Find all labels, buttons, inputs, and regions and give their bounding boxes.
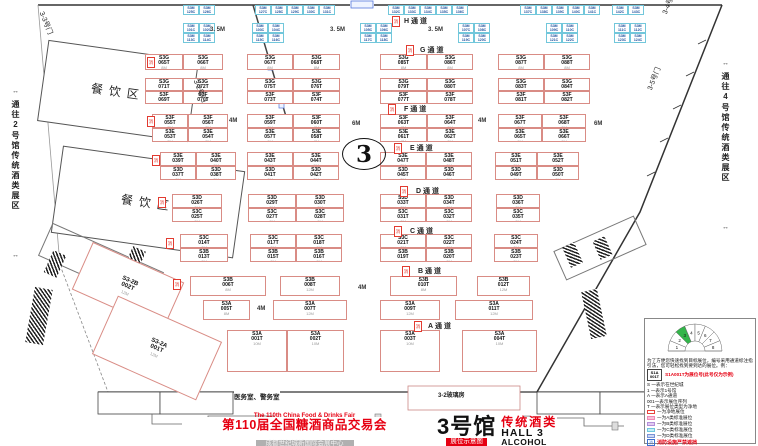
corridor-left-label: 通往2号馆传统酒类展区: [10, 100, 21, 250]
booth-s3c-028t: S3C028T8M: [296, 208, 344, 222]
booth-s3e-043t: S3E043T8M: [247, 152, 293, 166]
standard-booth-s3m-137c: S3M137C: [520, 5, 536, 15]
booth-s3d-045t: S3D045T8M: [380, 166, 426, 180]
booth-s3b-012t: S3B012T12M: [477, 276, 530, 296]
booth-s3f-060t: S3F060T8M: [293, 114, 340, 128]
aisle-label-e: E通道: [410, 143, 435, 153]
aisle-label-g: G通道: [420, 45, 445, 55]
standard-booth-s3m-114c: S3M114C: [199, 33, 215, 43]
booth-dimension: 12M: [281, 288, 339, 292]
direction-arrow-icon: ↔: [12, 88, 19, 95]
booth-s3c-031t: S3C031T8M: [380, 208, 426, 222]
booth-dimension: 8M: [427, 220, 471, 222]
fire-hydrant-tag: 消: [147, 57, 155, 68]
booth-s3a-001t: S3A001T10M: [227, 330, 287, 372]
booth-s3g-083t: S3G083T8M: [498, 78, 544, 91]
booth-s3f-068t: S3F068T8M: [542, 114, 586, 128]
standard-booth-s3m-138c: S3M138C: [536, 5, 552, 15]
booth-dimension: 7M: [153, 140, 187, 142]
booth-s3d-042t: S3D042T8M: [293, 166, 339, 180]
booth-dimension: 8M: [204, 312, 249, 316]
booth-s3g-088t: S3G088T8M: [544, 54, 590, 70]
booth-s3b-020t: S3B020T8M: [426, 248, 472, 262]
booth-dimension: 12M: [381, 312, 439, 316]
standard-booth-s3m-136c: S3M136C: [452, 5, 468, 15]
fire-hydrant-tag: 消: [402, 266, 410, 277]
booth-dimension: 8M: [381, 140, 426, 142]
booth-s3e-053t: S3E053T7M: [152, 128, 188, 142]
booth-s3f-073t: S3F073T8M: [247, 91, 293, 104]
standard-booth-s3m-120c: S3M120C: [474, 33, 490, 43]
booth-s3f-067t: S3F067T8M: [498, 114, 542, 128]
standard-booth-s3m-124c: S3M124C: [630, 33, 646, 43]
booth-s3a-011t: S3A011T12M: [455, 300, 533, 320]
booth-s3b-013t: S3B013T8M: [180, 248, 228, 262]
fire-hydrant-tag: 消: [388, 104, 396, 115]
booth-dimension: 8M: [427, 178, 471, 180]
booth-s3e-048t: S3E048T8M: [426, 152, 472, 166]
booth-dimension: 12M: [456, 312, 532, 316]
booth-s3e-058t: S3E058T8M: [293, 128, 340, 142]
standard-booth-s3m-105c: S3M105C: [360, 23, 376, 33]
booth-dimension: 8M: [184, 103, 222, 104]
fair-title-cn: 第110届全国糖酒商品交易会: [182, 419, 427, 432]
booth-class-swatch: [647, 434, 655, 438]
booth-dimension: 10M: [288, 342, 343, 346]
booth-dimension: 8M: [538, 178, 578, 180]
direction-arrow-icon: ↔: [722, 224, 729, 231]
standard-booth-s3m-131c: S3M131C: [319, 5, 335, 15]
booth-s3d-026t: S3D026T8M: [172, 194, 222, 208]
booth-class-swatch: [647, 428, 655, 432]
booth-dimension: 8M: [495, 260, 537, 262]
venue-label: 成都世纪城新国际会展中心: [256, 440, 354, 446]
dining-area-label: 餐饮区: [120, 190, 176, 214]
booth-s3c-025t: S3C025T8M: [172, 208, 222, 222]
fire-hydrant-tag: 消: [166, 238, 174, 249]
fire-hydrant-tag: 消: [392, 16, 400, 27]
dimension-label: 4M: [478, 118, 486, 124]
standard-booth-s3m-113c: S3M113C: [183, 33, 199, 43]
booth-dimension: 8M: [248, 178, 292, 180]
booth-s3g-071t: S3G071T8M: [145, 78, 183, 91]
booth-dimension: 8M: [197, 178, 235, 180]
booth-s3g-068t: S3G068T8M: [293, 54, 340, 70]
booth-s3d-034t: S3D034T8M: [426, 194, 472, 208]
aisle-label-a: A通道: [428, 321, 453, 331]
service-room-label: 医务室、警务室: [234, 391, 280, 401]
booth-s3e-047t: S3E047T8M: [380, 152, 426, 166]
booth-dimension: 8M: [428, 103, 472, 104]
booth-dimension: 12M: [274, 312, 346, 316]
fire-hydrant-tag: 消: [173, 279, 181, 290]
aisle-label-b: B通道: [418, 266, 443, 276]
standard-booth-s3m-140c: S3M140C: [568, 5, 584, 15]
booth-dimension: 8M: [381, 220, 425, 222]
booth-class-swatch: [647, 410, 655, 414]
standard-booth-s3m-142c: S3M142C: [612, 5, 628, 15]
booth-s3f-077t: S3F077T8M: [380, 91, 427, 104]
fire-hydrant-tag: 消: [400, 186, 408, 197]
dining-area-label: 餐饮区: [90, 79, 146, 103]
booth-s3g-080t: S3G080T8M: [427, 78, 473, 91]
booth-dimension: 8M: [294, 178, 338, 180]
booth-s3c-032t: S3C032T8M: [426, 208, 472, 222]
booth-s3b-006t: S3B006T8M: [190, 276, 266, 296]
booth-s3a-005t: S3A005T8M: [203, 300, 250, 320]
booth-s3g-084t: S3G084T8M: [544, 78, 590, 91]
booth-s3c-017t: S3C017T8M: [250, 234, 296, 248]
standard-booth-s3m-116c: S3M116C: [268, 33, 284, 43]
legend-classes: 一为净地展位一为A类标准展位一为B类标准展位一为C类标准展位一为D类标准展位: [647, 409, 753, 438]
direction-arrow-icon: ↔: [722, 60, 729, 67]
booth-s3f-055t: S3F055T7M: [152, 114, 188, 128]
standard-booth-s3m-110c: S3M110C: [562, 23, 578, 33]
booth-s3d-030t: S3D030T8M: [296, 194, 344, 208]
dimension-label: 4M: [229, 118, 237, 124]
standard-booth-s3m-115c: S3M115C: [252, 33, 268, 43]
legend-example-booth: S1A 001T: [647, 369, 662, 381]
booth-s3a-004t: S3A004T10M: [462, 330, 537, 372]
aisle-label-f: F通道: [404, 104, 428, 114]
booth-dimension: 8M: [381, 66, 426, 70]
standard-booth-s3m-123c: S3M123C: [614, 33, 630, 43]
booth-dimension: 8M: [427, 260, 471, 262]
booth-dimension: 8M: [248, 140, 292, 142]
standard-booth-s3m-109c: S3M109C: [546, 23, 562, 33]
standard-booth-s3m-141c: S3M141C: [584, 5, 600, 15]
booth-dimension: 8M: [294, 103, 339, 104]
booth-s3e-066t: S3E066T8M: [542, 128, 586, 142]
standard-booth-s3m-117c: S3M117C: [360, 33, 376, 43]
booth-s3d-041t: S3D041T8M: [247, 166, 293, 180]
booth-s3c-014t: S3C014T8M: [180, 234, 228, 248]
dimension-label: 4M: [257, 306, 265, 312]
dimension-label: 3. 5M: [330, 27, 345, 33]
booth-dimension: 10M: [381, 342, 439, 346]
booth-dimension: 10M: [463, 342, 536, 346]
booth-s3g-066t: S3G066T8M: [183, 54, 223, 70]
booth-s3e-062t: S3E062T8M: [427, 128, 473, 142]
booth-dimension: 8M: [146, 103, 182, 104]
booth-dimension: 8M: [499, 140, 541, 142]
standard-booth-s3m-107c: S3M107C: [458, 23, 474, 33]
booth-dimension: 8M: [428, 140, 472, 142]
booth-dimension: 8M: [496, 178, 536, 180]
booth-dimension: 8M: [251, 260, 295, 262]
standard-booth-s3m-135c: S3M135C: [436, 5, 452, 15]
booth-s3d-036t: S3D036T8M: [496, 194, 540, 208]
legend-fire-note: 消 消防设施严禁遮挡: [647, 439, 753, 446]
booth-dimension: 8M: [297, 220, 343, 222]
booth-dimension: 8M: [173, 220, 221, 222]
booth-dimension: 8M: [497, 220, 539, 222]
booth-dimension: 8M: [381, 178, 425, 180]
booth-dimension: 12M: [478, 288, 529, 292]
standard-booth-s3m-133c: S3M133C: [404, 5, 420, 15]
legend-rules: S 一表示在世纪城1 一表示1号馆A 一表示A通道001一表示展位序列T 一表示…: [647, 382, 753, 409]
standard-booth-s3m-104c: S3M104C: [268, 23, 284, 33]
booth-s3e-054t: S3E054T7M: [188, 128, 228, 142]
fire-hydrant-tag: 消: [406, 45, 414, 56]
booth-s3f-069t: S3F069T8M: [145, 91, 183, 104]
standard-booth-s3m-129c: S3M129C: [287, 5, 303, 15]
floor-plan: 餐饮区 餐饮区 3 ↔ 通往2号馆传统酒类展区 ↔ ↔ 通往4号馆传统酒类展区 …: [0, 0, 758, 446]
standard-booth-s3m-128c: S3M128C: [271, 5, 287, 15]
booth-s3d-046t: S3D046T8M: [426, 166, 472, 180]
booth-s3g-067t: S3G067T8M: [247, 54, 293, 70]
standard-booth-s3m-121c: S3M121C: [546, 33, 562, 43]
booth-s3f-078t: S3F078T8M: [427, 91, 473, 104]
booth-s3c-018t: S3C018T8M: [296, 234, 342, 248]
standard-booth-s3m-130c: S3M130C: [303, 5, 319, 15]
hall-name-cn: 3号馆: [437, 417, 496, 437]
booth-dimension: 8M: [294, 140, 339, 142]
fire-hydrant-tag: 消: [394, 226, 402, 237]
standard-booth-s3m-134c: S3M134C: [420, 5, 436, 15]
map-type-badge: 展位示意图: [446, 438, 487, 446]
fire-hydrant-tag: 消: [152, 155, 160, 166]
fair-title-block: The 110th China Food & Drinks Fair 第110届…: [182, 413, 427, 446]
category-en: ALCOHOL: [501, 438, 557, 446]
booth-s3g-087t: S3G087T8M: [498, 54, 544, 70]
dimension-label: 6M: [594, 121, 602, 127]
aisle-label-d: D通道: [416, 186, 441, 196]
booth-dimension: 8M: [191, 288, 265, 292]
booth-s3f-063t: S3F063T8M: [380, 114, 427, 128]
standard-booth-s3m-112c: S3M112C: [630, 23, 646, 33]
hall-title-block: 3号馆 展位示意图 传统酒类 HALL 3 ALCOHOL: [437, 416, 557, 446]
glass-room-label: 3-2玻璃房: [438, 390, 465, 399]
legend-class-label: 一为D类标准展位: [657, 433, 692, 439]
booth-dimension: 8M: [184, 66, 222, 70]
standard-booth-s3m-126c: S3M126C: [199, 5, 215, 15]
booth-s3f-059t: S3F059T8M: [247, 114, 293, 128]
booth-s3f-081t: S3F081T8M: [498, 91, 544, 104]
booth-dimension: 8M: [499, 66, 543, 70]
title-bar: The 110th China Food & Drinks Fair 第110届…: [182, 417, 557, 446]
booth-dimension: 8M: [297, 260, 341, 262]
legend-example-note: S1A001T为展位号(此号仅为示例): [665, 372, 733, 378]
dimension-label: 3. 5M: [210, 27, 225, 33]
standard-booth-s3m-132c: S3M132C: [388, 5, 404, 15]
standard-booth-s3m-103c: S3M103C: [252, 23, 268, 33]
door-icon: [351, 1, 373, 8]
fire-hydrant-icon: 消: [647, 439, 655, 446]
legend-intro: 为了方便您快速找到目标展位，编号采用通道标注指引法，您可轻松找到要到达的展位。例…: [647, 358, 753, 368]
booth-s3g-076t: S3G076T8M: [293, 78, 340, 91]
booth-dimension: 8M: [294, 66, 339, 70]
legend-class-row: 一为D类标准展位: [647, 433, 753, 439]
booth-s3f-074t: S3F074T8M: [293, 91, 340, 104]
booth-s3f-082t: S3F082T8M: [544, 91, 590, 104]
booth-dimension: 8M: [545, 66, 589, 70]
booth-s3d-049t: S3D049T8M: [495, 166, 537, 180]
booth-s3g-075t: S3G075T8M: [247, 78, 293, 91]
booth-dimension: 8M: [248, 66, 292, 70]
booth-dimension: 8M: [248, 103, 292, 104]
booth-s3b-015t: S3B015T8M: [250, 248, 296, 262]
booth-s3c-022t: S3C022T8M: [426, 234, 472, 248]
hall-number: 3: [356, 141, 372, 168]
booth-s3a-007t: S3A007T12M: [273, 300, 347, 320]
standard-booth-s3m-127c: S3M127C: [255, 5, 271, 15]
booth-s3a-003t: S3A003T10M: [380, 330, 440, 372]
booth-s3d-029t: S3D029T8M: [248, 194, 296, 208]
standard-booth-s3m-106c: S3M106C: [376, 23, 392, 33]
booth-dimension: 8M: [381, 260, 425, 262]
standard-booth-s3m-125c: S3M125C: [183, 5, 199, 15]
booth-class-swatch: [647, 422, 655, 426]
booth-dimension: 7M: [189, 140, 227, 142]
standard-booth-s3m-111c: S3M111C: [614, 23, 630, 33]
booth-dimension: 8M: [543, 140, 585, 142]
booth-s3e-051t: S3E051T8M: [495, 152, 537, 166]
booth-s3c-035t: S3C035T8M: [496, 208, 540, 222]
standard-booth-s3m-143c: S3M143C: [628, 5, 644, 15]
booth-s3b-016t: S3B016T8M: [296, 248, 342, 262]
booth-s3b-019t: S3B019T8M: [380, 248, 426, 262]
fire-hydrant-tag: 消: [394, 143, 402, 154]
direction-arrow-icon: ↔: [12, 252, 19, 259]
dimension-label: 4M: [358, 285, 366, 291]
booth-s3g-079t: S3G079T8M: [380, 78, 427, 91]
booth-class-swatch: [647, 416, 655, 420]
booth-s3g-085t: S3G085T8M: [380, 54, 427, 70]
standard-booth-s3m-119c: S3M119C: [458, 33, 474, 43]
standard-booth-s3m-101c: S3M101C: [183, 23, 199, 33]
standard-booth-s3m-139c: S3M139C: [552, 5, 568, 15]
booth-dimension: 8M: [499, 103, 543, 104]
booth-s3d-038t: S3D038T8M: [196, 166, 236, 180]
booth-dimension: 8M: [249, 220, 295, 222]
booth-s3e-040t: S3E040T8M: [196, 152, 236, 166]
booth-dimension: 8M: [545, 103, 589, 104]
dimension-label: 3. 5M: [428, 27, 443, 33]
booth-s3e-065t: S3E065T8M: [498, 128, 542, 142]
booth-s3e-057t: S3E057T8M: [247, 128, 293, 142]
standard-booth-s3m-118c: S3M118C: [376, 33, 392, 43]
booth-s3a-002t: S3A002T10M: [287, 330, 344, 372]
booth-s3c-021t: S3C021T8M: [380, 234, 426, 248]
fire-hydrant-tag: 消: [147, 116, 155, 127]
booth-s3d-037t: S3D037T8M: [160, 166, 196, 180]
booth-s3a-009t: S3A009T12M: [380, 300, 440, 320]
aisle-label-h: H通道: [404, 16, 429, 26]
booth-dimension: 8M: [161, 178, 195, 180]
fire-hydrant-tag: 消: [158, 197, 166, 208]
booth-s3c-027t: S3C027T8M: [248, 208, 296, 222]
booth-s3b-010t: S3B010T8M: [390, 276, 457, 296]
booth-s3f-056t: S3F056T7M: [188, 114, 228, 128]
booth-s3e-039t: S3E039T8M: [160, 152, 196, 166]
booth-s3e-052t: S3E052T8M: [537, 152, 579, 166]
standard-booth-s3m-108c: S3M108C: [474, 23, 490, 33]
booth-s3f-064t: S3F064T8M: [427, 114, 473, 128]
hall-number-circle: 3: [342, 138, 386, 170]
booth-s3c-024t: S3C024T8M: [494, 234, 538, 248]
hall-overview-fan: 12345678: [647, 320, 743, 353]
booth-dimension: 10M: [228, 342, 286, 346]
booth-s3b-008t: S3B008T12M: [280, 276, 340, 296]
aisle-label-c: C通道: [410, 226, 435, 236]
booth-s3g-086t: S3G086T8M: [427, 54, 473, 70]
fire-hydrant-tag: 消: [414, 321, 422, 332]
legend-panel: 12345678 为了方便您快速找到目标展位，编号采用通道标注指引法，您可轻松找…: [644, 318, 756, 444]
booth-dimension: 8M: [181, 260, 227, 262]
booth-dimension: 8M: [428, 66, 472, 70]
booth-dimension: 8M: [391, 288, 456, 292]
booth-s3e-061t: S3E061T8M: [380, 128, 427, 142]
standard-booth-s3m-122c: S3M122C: [562, 33, 578, 43]
corridor-right-label: 通往4号馆传统酒类展区: [720, 72, 731, 222]
dimension-label: 6M: [352, 121, 360, 127]
booth-s3b-023t: S3B023T8M: [494, 248, 538, 262]
booth-s3d-050t: S3D050T8M: [537, 166, 579, 180]
booth-s3e-044t: S3E044T8M: [293, 152, 339, 166]
